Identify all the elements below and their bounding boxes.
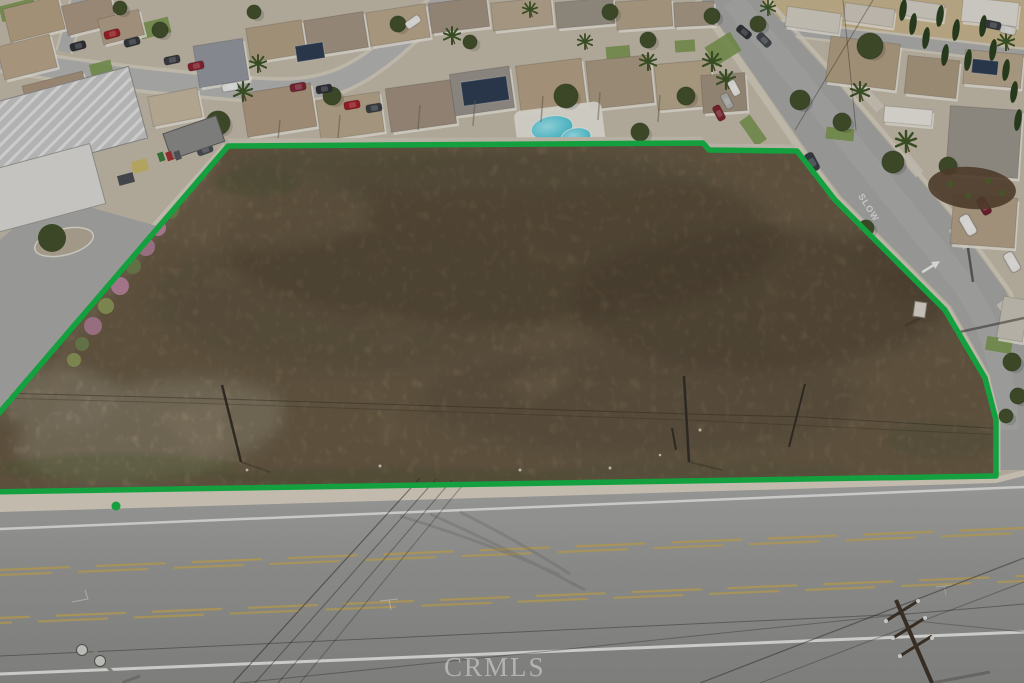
aerial-photo: SLOW (0, 0, 1024, 683)
photo-grain-overlay (0, 0, 1024, 683)
aerial-photo-canvas: SLOW (0, 0, 1024, 683)
